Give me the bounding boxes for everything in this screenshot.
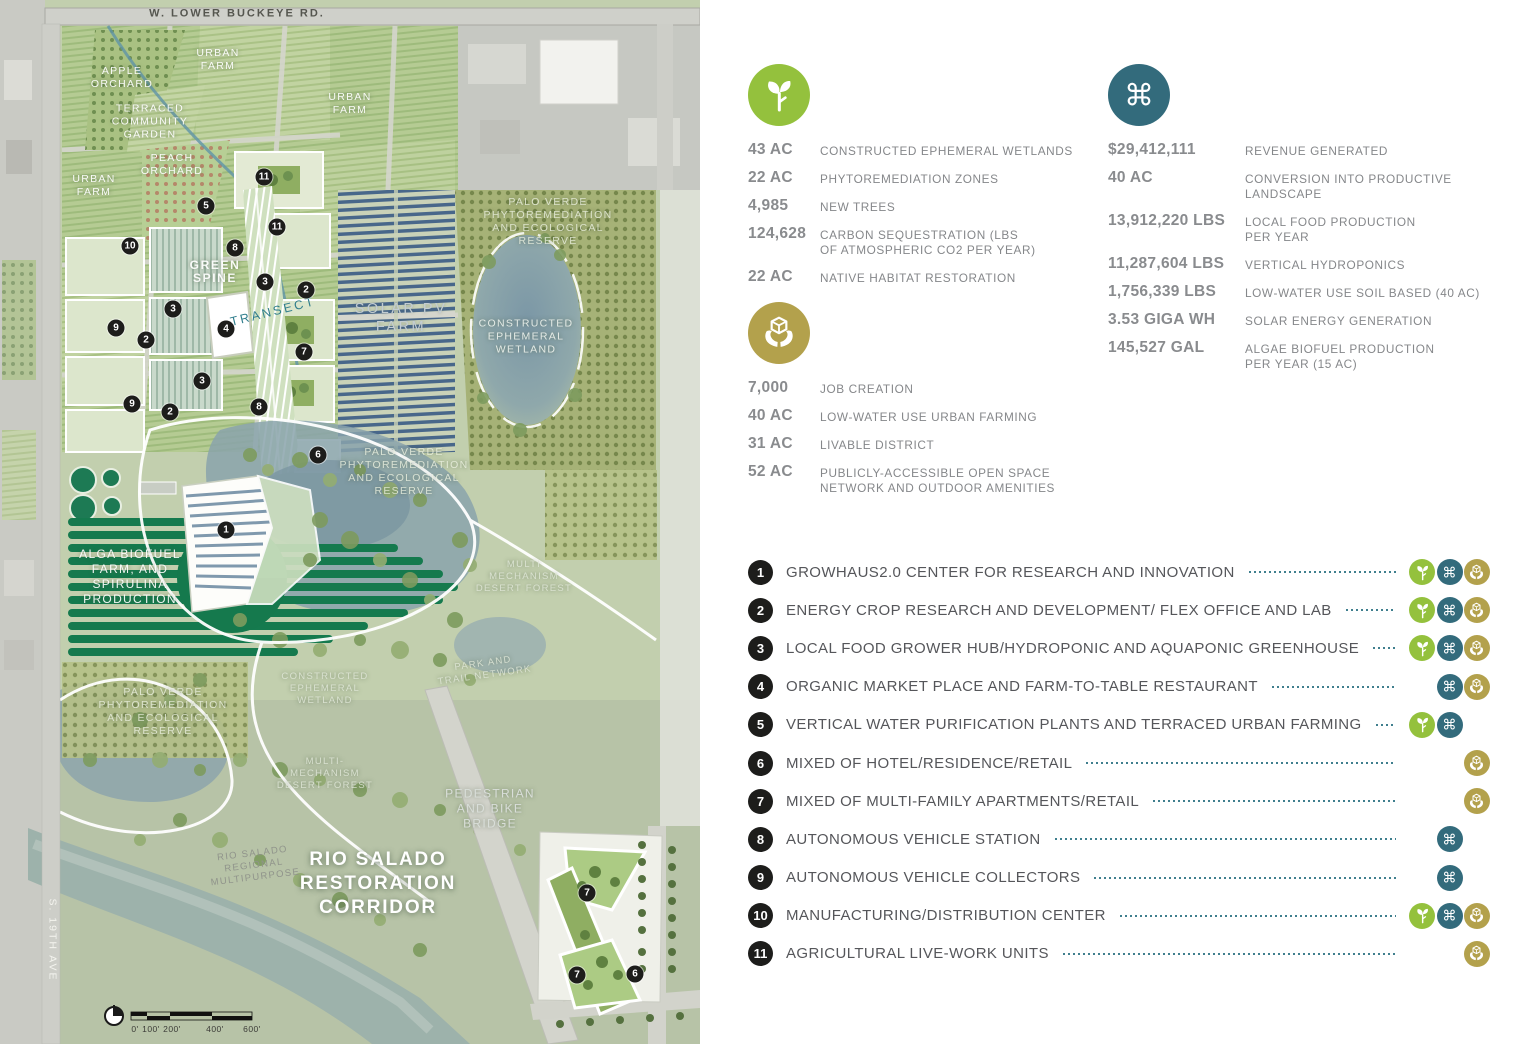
stat-label: ALGAE BIOFUEL PRODUCTION PER YEAR (15 AC… <box>1245 340 1435 372</box>
stat-row: 31 AC LIVABLE DISTRICT <box>748 436 1088 453</box>
stat-row: $29,412,111 REVENUE GENERATED <box>1108 142 1528 159</box>
community-icon <box>1464 750 1490 776</box>
legend-row: 3 LOCAL FOOD GROWER HUB/HYDROPONIC AND A… <box>748 629 1490 667</box>
legend-label: MANUFACTURING/DISTRIBUTION CENTER <box>786 907 1106 924</box>
legend-number-badge: 6 <box>748 751 773 776</box>
svg-text:⌘: ⌘ <box>1442 909 1456 925</box>
site-plan-map: W. LOWER BUCKEYE RD.APPLE ORCHARDURBAN F… <box>0 0 700 1044</box>
legend-number-badge: 7 <box>748 789 773 814</box>
stat-label: JOB CREATION <box>820 380 914 397</box>
empty-icon <box>1409 865 1435 891</box>
stat-value: 124,628 <box>748 226 820 242</box>
stat-value: 22 AC <box>748 170 820 186</box>
legend-row: 4 ORGANIC MARKET PLACE AND FARM-TO-TABLE… <box>748 668 1490 706</box>
empty-icon <box>1409 750 1435 776</box>
legend-label: VERTICAL WATER PURIFICATION PLANTS AND T… <box>786 716 1362 733</box>
community-icon <box>1464 941 1490 967</box>
svg-text:⌘: ⌘ <box>1442 603 1456 619</box>
empty-icon <box>1437 788 1463 814</box>
plant-icon <box>1409 559 1435 585</box>
stat-label: PHYTOREMEDIATION ZONES <box>820 170 999 187</box>
palo-verde-rows-east <box>545 470 657 560</box>
stat-value: 22 AC <box>748 269 820 285</box>
legend-number-badge: 8 <box>748 827 773 852</box>
legend-row: 1 GROWHAUS2.0 CENTER FOR RESEARCH AND IN… <box>748 553 1490 591</box>
svg-text:⌘: ⌘ <box>1442 718 1456 734</box>
legend-label: ENERGY CROP RESEARCH AND DEVELOPMENT/ FL… <box>786 602 1332 619</box>
legend-label: MIXED OF MULTI-FAMILY APARTMENTS/RETAIL <box>786 793 1139 810</box>
community-icon <box>1464 597 1490 623</box>
community-icon <box>1464 788 1490 814</box>
stat-value: 145,527 GAL <box>1108 340 1245 356</box>
dotted-leader-line <box>1249 571 1396 573</box>
stat-label: CONSTRUCTED EPHEMERAL WETLANDS <box>820 142 1073 159</box>
empty-icon <box>1464 712 1490 738</box>
legend-number-badge: 3 <box>748 636 773 661</box>
legend-label: AUTONOMOUS VEHICLE COLLECTORS <box>786 869 1080 886</box>
legend-number-badge: 10 <box>748 903 773 928</box>
legend-number-badge: 1 <box>748 560 773 585</box>
plant-icon <box>1409 903 1435 929</box>
dotted-leader-line <box>1373 647 1396 649</box>
community-stats: 7,000 JOB CREATION 40 AC LOW-WATER USE U… <box>748 302 1088 507</box>
stat-label: LIVABLE DISTRICT <box>820 436 934 453</box>
legend-row: 5 VERTICAL WATER PURIFICATION PLANTS AND… <box>748 706 1490 744</box>
hands-box-icon <box>748 302 810 364</box>
dotted-leader-line <box>1153 800 1396 802</box>
legend-label: AUTONOMOUS VEHICLE STATION <box>786 831 1041 848</box>
empty-icon <box>1409 826 1435 852</box>
plant-icon <box>1409 635 1435 661</box>
empty-icon <box>1409 941 1435 967</box>
empty-icon <box>1464 865 1490 891</box>
stat-value: 40 AC <box>748 408 820 424</box>
stat-label: NATIVE HABITAT RESTORATION <box>820 269 1016 286</box>
program-legend: 1 GROWHAUS2.0 CENTER FOR RESEARCH AND IN… <box>748 553 1490 973</box>
stat-row: 4,985 NEW TREES <box>748 198 1088 215</box>
empty-icon <box>1437 750 1463 776</box>
dotted-leader-line <box>1120 915 1396 917</box>
stat-label: NEW TREES <box>820 198 895 215</box>
plant-icon <box>1409 712 1435 738</box>
stat-label: VERTICAL HYDROPONICS <box>1245 256 1405 273</box>
legend-row: 8 AUTONOMOUS VEHICLE STATION ⌘ <box>748 820 1490 858</box>
stat-label: SOLAR ENERGY GENERATION <box>1245 312 1432 329</box>
stat-row: 52 AC PUBLICLY-ACCESSIBLE OPEN SPACE NET… <box>748 464 1088 496</box>
palo-verde-rows-southwest <box>62 662 248 758</box>
production-icon: ⌘ <box>1437 712 1463 738</box>
legend-icon-set: ⌘ <box>1408 559 1490 585</box>
environment-stats: 43 AC CONSTRUCTED EPHEMERAL WETLANDS 22 … <box>748 64 1088 297</box>
legend-icon-set <box>1408 941 1490 967</box>
stat-row: 40 AC CONVERSION INTO PRODUCTIVE LANDSCA… <box>1108 170 1528 202</box>
stat-row: 22 AC PHYTOREMEDIATION ZONES <box>748 170 1088 187</box>
legend-label: LOCAL FOOD GROWER HUB/HYDROPONIC AND AQU… <box>786 640 1359 657</box>
svg-text:⌘: ⌘ <box>1124 79 1154 114</box>
production-icon: ⌘ <box>1437 674 1463 700</box>
svg-text:⌘: ⌘ <box>1442 832 1456 848</box>
legend-icon-set <box>1408 788 1490 814</box>
stat-label: CARBON SEQUESTRATION (LBS OF ATMOSPHERIC… <box>820 226 1036 258</box>
legend-number-badge: 5 <box>748 712 773 737</box>
legend-number-badge: 11 <box>748 941 773 966</box>
stat-value: 1,756,339 LBS <box>1108 284 1245 300</box>
plant-icon <box>1409 597 1435 623</box>
stat-label: REVENUE GENERATED <box>1245 142 1388 159</box>
command-icon: ⌘ <box>1108 64 1170 126</box>
svg-text:⌘: ⌘ <box>1442 642 1456 658</box>
stat-row: 124,628 CARBON SEQUESTRATION (LBS OF ATM… <box>748 226 1088 258</box>
legend-number-badge: 4 <box>748 674 773 699</box>
legend-label: ORGANIC MARKET PLACE AND FARM-TO-TABLE R… <box>786 678 1258 695</box>
palo-verde-reserve-northeast <box>455 190 656 470</box>
legend-row: 7 MIXED OF MULTI-FAMILY APARTMENTS/RETAI… <box>748 782 1490 820</box>
plant-icon <box>748 64 810 126</box>
legend-row: 2 ENERGY CROP RESEARCH AND DEVELOPMENT/ … <box>748 591 1490 629</box>
dotted-leader-line <box>1055 838 1396 840</box>
stat-value: 13,912,220 LBS <box>1108 213 1245 229</box>
legend-row: 11 AGRICULTURAL LIVE-WORK UNITS <box>748 935 1490 973</box>
community-icon <box>1464 674 1490 700</box>
stat-row: 22 AC NATIVE HABITAT RESTORATION <box>748 269 1088 286</box>
dotted-leader-line <box>1063 953 1396 955</box>
legend-row: 10 MANUFACTURING/DISTRIBUTION CENTER ⌘ <box>748 897 1490 935</box>
stat-value: 7,000 <box>748 380 820 396</box>
legend-icon-set <box>1408 750 1490 776</box>
production-icon: ⌘ <box>1437 635 1463 661</box>
community-icon <box>1464 635 1490 661</box>
community-icon <box>1464 559 1490 585</box>
legend-label: AGRICULTURAL LIVE-WORK UNITS <box>786 945 1049 962</box>
production-icon: ⌘ <box>1437 865 1463 891</box>
stat-value: $29,412,111 <box>1108 142 1245 158</box>
legend-label: MIXED OF HOTEL/RESIDENCE/RETAIL <box>786 755 1072 772</box>
legend-label: GROWHAUS2.0 CENTER FOR RESEARCH AND INNO… <box>786 564 1235 581</box>
stat-label: LOW-WATER USE SOIL BASED (40 AC) <box>1245 284 1480 301</box>
legend-row: 9 AUTONOMOUS VEHICLE COLLECTORS ⌘ <box>748 859 1490 897</box>
legend-number-badge: 9 <box>748 865 773 890</box>
stat-value: 11,287,604 LBS <box>1108 256 1245 272</box>
stat-row: 11,287,604 LBS VERTICAL HYDROPONICS <box>1108 256 1528 273</box>
urban-strip-west <box>0 0 45 1044</box>
community-icon <box>1464 903 1490 929</box>
dotted-leader-line <box>1086 762 1396 764</box>
stat-value: 31 AC <box>748 436 820 452</box>
dotted-leader-line <box>1272 686 1396 688</box>
stat-value: 40 AC <box>1108 170 1245 186</box>
legend-number-badge: 2 <box>748 598 773 623</box>
stat-label: PUBLICLY-ACCESSIBLE OPEN SPACE NETWORK A… <box>820 464 1055 496</box>
legend-icon-set: ⌘ <box>1408 674 1490 700</box>
stat-row: 7,000 JOB CREATION <box>748 380 1088 397</box>
legend-icon-set: ⌘ <box>1408 865 1490 891</box>
dotted-leader-line <box>1376 724 1396 726</box>
stat-row: 40 AC LOW-WATER USE URBAN FARMING <box>748 408 1088 425</box>
stat-value: 4,985 <box>748 198 820 214</box>
production-icon: ⌘ <box>1437 903 1463 929</box>
legend-icon-set: ⌘ <box>1408 597 1490 623</box>
legend-icon-set: ⌘ <box>1408 903 1490 929</box>
dotted-leader-line <box>1346 609 1396 611</box>
legend-icon-set: ⌘ <box>1408 635 1490 661</box>
svg-text:⌘: ⌘ <box>1442 565 1456 581</box>
empty-icon <box>1409 674 1435 700</box>
stat-value: 52 AC <box>748 464 820 480</box>
stat-row: 43 AC CONSTRUCTED EPHEMERAL WETLANDS <box>748 142 1088 159</box>
empty-icon <box>1409 788 1435 814</box>
legend-row: 6 MIXED OF HOTEL/RESIDENCE/RETAIL <box>748 744 1490 782</box>
stat-row: 3.53 GIGA WH SOLAR ENERGY GENERATION <box>1108 312 1528 329</box>
solar-pv-farm <box>338 190 455 455</box>
svg-text:⌘: ⌘ <box>1442 871 1456 887</box>
production-icon: ⌘ <box>1437 597 1463 623</box>
empty-icon <box>1437 941 1463 967</box>
legend-icon-set: ⌘ <box>1408 826 1490 852</box>
production-stats: ⌘ $29,412,111 REVENUE GENERATED 40 AC CO… <box>1108 64 1528 383</box>
stat-row: 145,527 GAL ALGAE BIOFUEL PRODUCTION PER… <box>1108 340 1528 372</box>
map-east-edge <box>660 190 700 826</box>
stat-label: CONVERSION INTO PRODUCTIVE LANDSCAPE <box>1245 170 1452 202</box>
stat-value: 3.53 GIGA WH <box>1108 312 1245 328</box>
presentation-board: W. LOWER BUCKEYE RD.APPLE ORCHARDURBAN F… <box>0 0 1536 1044</box>
svg-text:⌘: ⌘ <box>1442 680 1456 696</box>
stat-row: 1,756,339 LBS LOW-WATER USE SOIL BASED (… <box>1108 284 1528 301</box>
production-icon: ⌘ <box>1437 559 1463 585</box>
legend-icon-set: ⌘ <box>1408 712 1490 738</box>
empty-icon <box>1464 826 1490 852</box>
stat-label: LOW-WATER USE URBAN FARMING <box>820 408 1037 425</box>
production-icon: ⌘ <box>1437 826 1463 852</box>
stat-row: 13,912,220 LBS LOCAL FOOD PRODUCTION PER… <box>1108 213 1528 245</box>
stat-label: LOCAL FOOD PRODUCTION PER YEAR <box>1245 213 1416 245</box>
site-plan-artwork <box>0 0 700 1044</box>
stat-value: 43 AC <box>748 142 820 158</box>
dotted-leader-line <box>1094 877 1396 879</box>
